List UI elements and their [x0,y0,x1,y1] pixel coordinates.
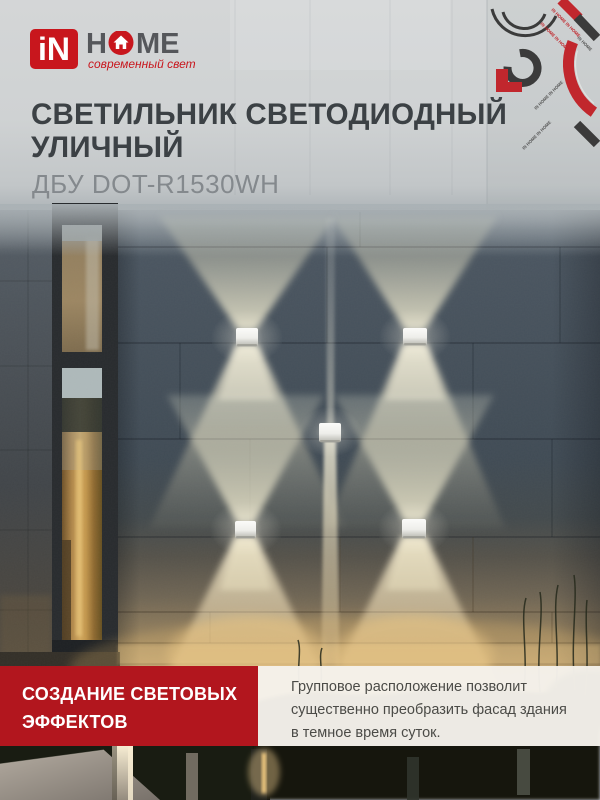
svg-text:H: H [86,31,107,60]
svg-text:ME: ME [136,31,180,60]
svg-text:современный свет: современный свет [88,57,196,71]
